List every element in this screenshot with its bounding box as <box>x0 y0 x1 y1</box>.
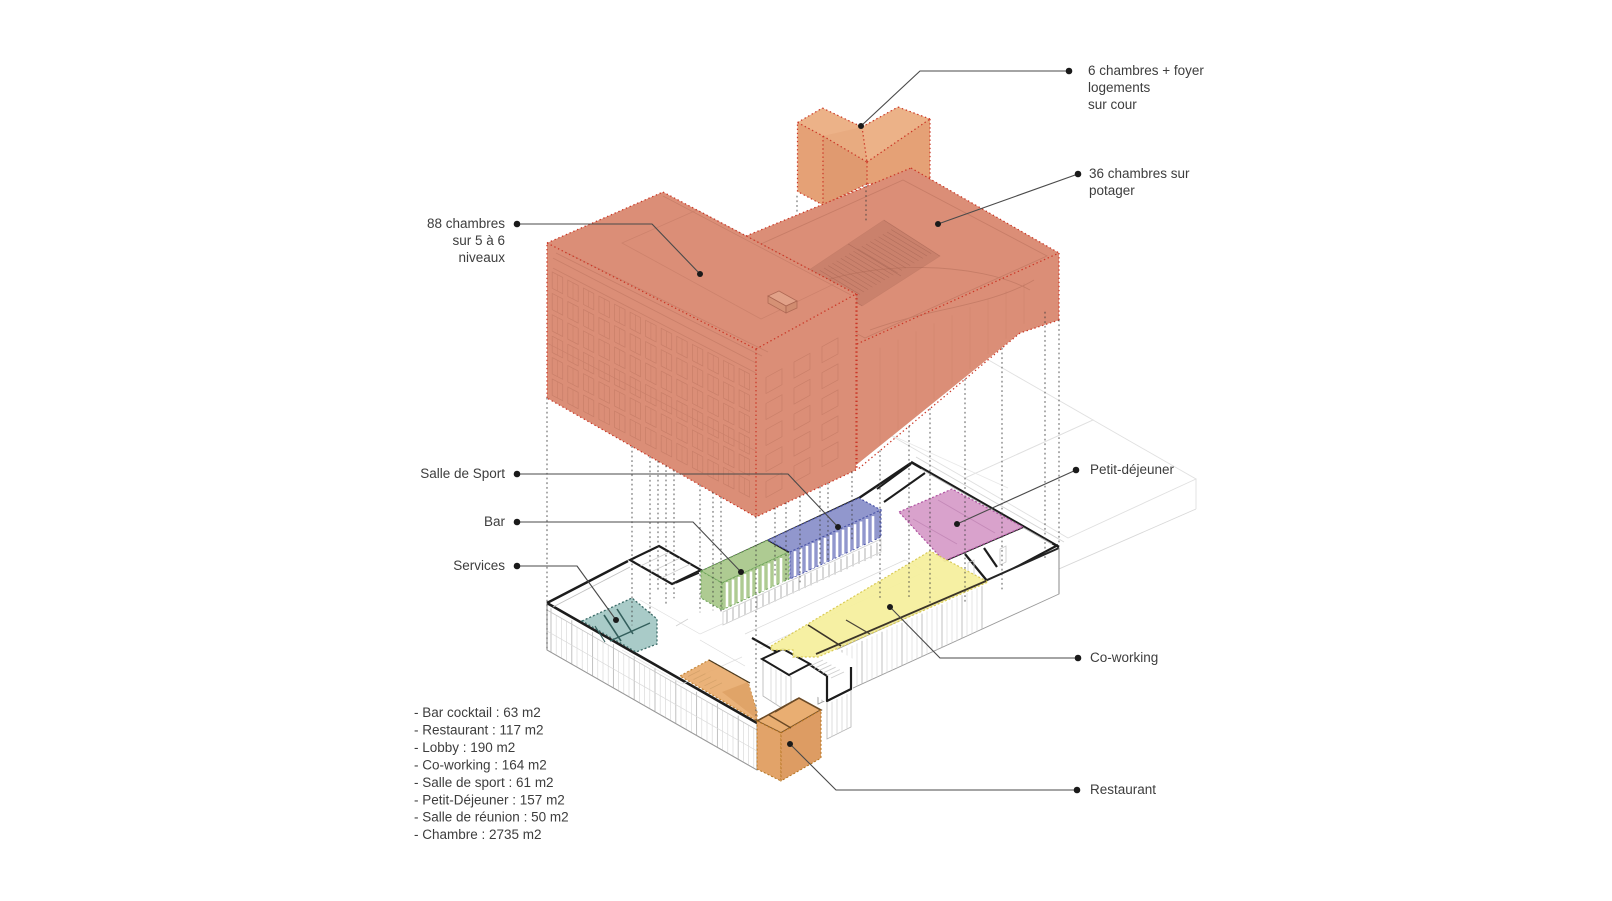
svg-text:Petit-déjeuner: Petit-déjeuner <box>1090 462 1175 477</box>
svg-text:sur cour: sur cour <box>1088 97 1137 112</box>
svg-text:- Bar cocktail : 63 m2: - Bar cocktail : 63 m2 <box>414 705 541 720</box>
svg-text:sur 5 à 6: sur 5 à 6 <box>452 233 505 248</box>
svg-text:niveaux: niveaux <box>458 250 505 265</box>
svg-text:- Lobby : 190 m2: - Lobby : 190 m2 <box>414 740 515 755</box>
svg-text:- Salle de sport : 61 m2: - Salle de sport : 61 m2 <box>414 775 554 790</box>
svg-text:- Restaurant : 117 m2: - Restaurant : 117 m2 <box>414 722 544 737</box>
svg-text:Salle de Sport: Salle de Sport <box>420 466 505 481</box>
svg-text:- Salle de réunion : 50 m2: - Salle de réunion : 50 m2 <box>414 810 569 825</box>
svg-text:88 chambres: 88 chambres <box>427 216 505 231</box>
svg-text:- Chambre : 2735 m2: - Chambre : 2735 m2 <box>414 827 542 842</box>
svg-text:36 chambres sur: 36 chambres sur <box>1089 166 1190 181</box>
svg-text:Co-working: Co-working <box>1090 650 1158 665</box>
svg-text:6 chambres + foyer: 6 chambres + foyer <box>1088 63 1204 78</box>
svg-text:Restaurant: Restaurant <box>1090 782 1156 797</box>
svg-text:- Co-working : 164 m2: - Co-working : 164 m2 <box>414 757 547 772</box>
svg-text:Services: Services <box>453 558 505 573</box>
svg-text:Bar: Bar <box>484 514 506 529</box>
svg-text:logements: logements <box>1088 80 1151 95</box>
svg-text:- Petit-Déjeuner : 157 m2: - Petit-Déjeuner : 157 m2 <box>414 792 565 807</box>
svg-text:potager: potager <box>1089 183 1135 198</box>
